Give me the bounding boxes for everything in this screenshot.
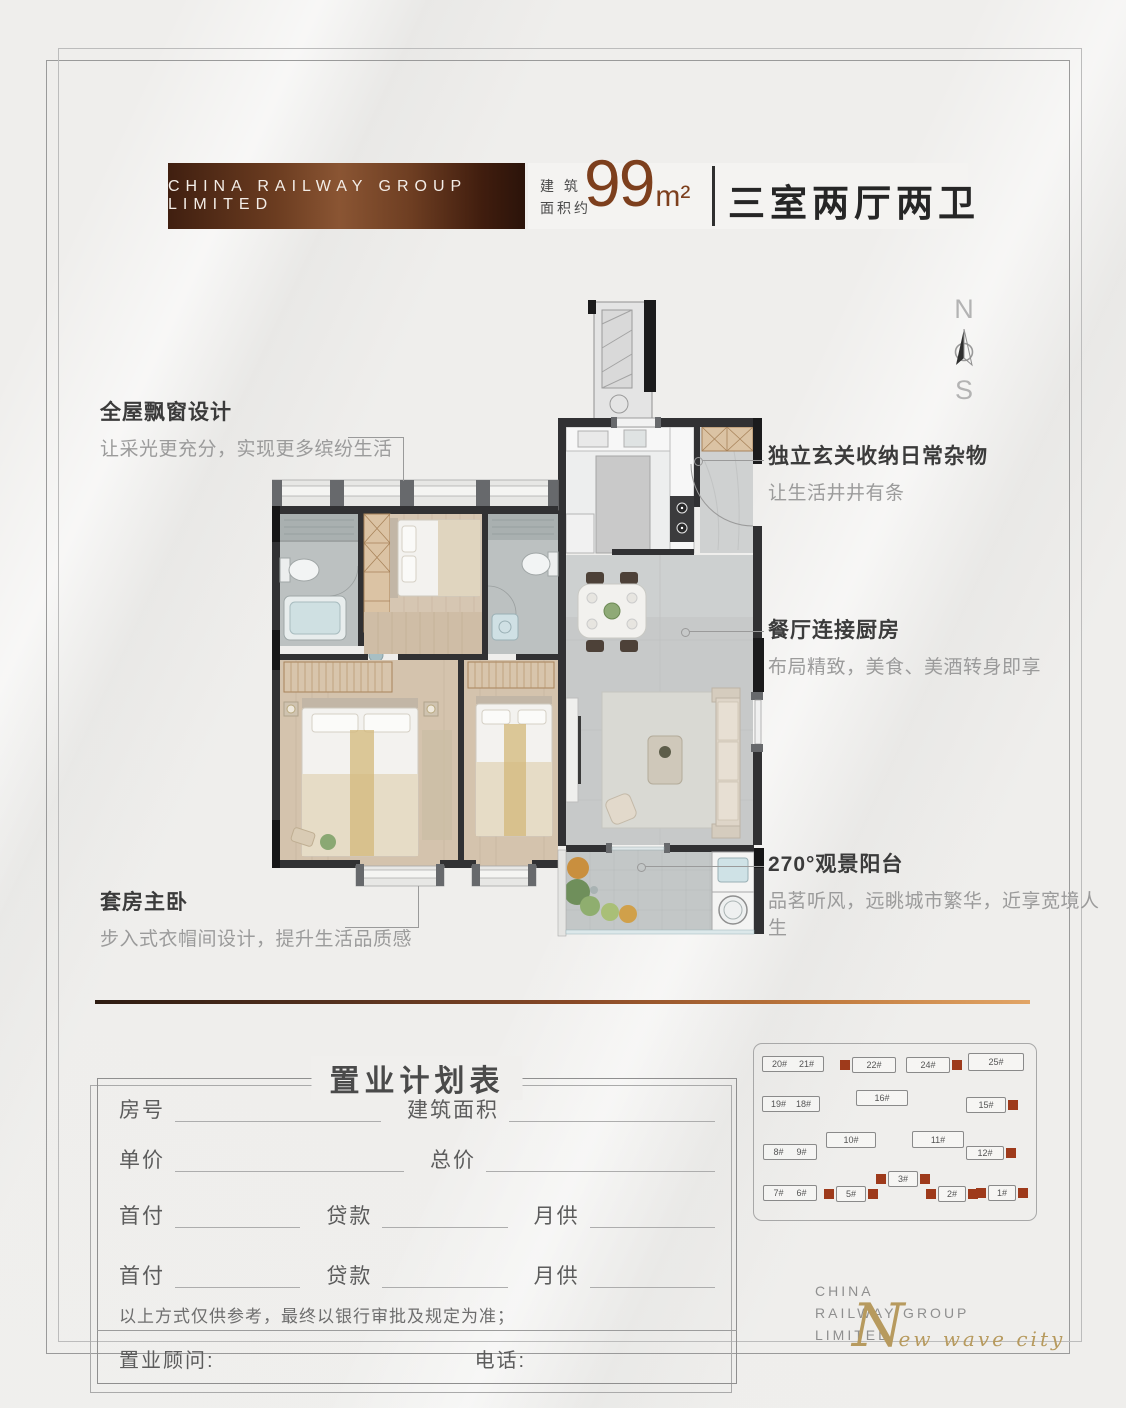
field-label-downpayment: 首付 <box>119 1200 165 1230</box>
building-label: 19# <box>771 1099 786 1109</box>
building-label: 10# <box>843 1135 858 1145</box>
building-outline: 5# <box>836 1186 866 1202</box>
connector-line <box>689 631 764 632</box>
field-blank <box>175 1098 381 1122</box>
site-building: 1# <box>976 1185 1028 1201</box>
building-label: 7# <box>773 1188 783 1198</box>
site-building: 10# <box>826 1132 876 1148</box>
site-building: 22# <box>840 1057 896 1073</box>
building-outline: 20#21# <box>762 1056 824 1072</box>
form-footer-row: 置业顾问: 电话: <box>119 1344 715 1373</box>
annotation-master-suite: 套房主卧 步入式衣帽间设计，提升生活品质感 <box>100 886 430 951</box>
building-outline: 16# <box>856 1090 908 1106</box>
brand-banner: CHINA RAILWAY GROUP LIMITED <box>168 163 525 229</box>
compass: N S <box>940 296 988 404</box>
building-outline: 22# <box>852 1057 896 1073</box>
connector-dot <box>637 863 646 872</box>
sold-marker <box>824 1189 834 1199</box>
building-label: 6# <box>796 1188 806 1198</box>
sold-marker <box>976 1188 986 1198</box>
building-label: 2# <box>947 1189 957 1199</box>
building-label: 15# <box>978 1100 993 1110</box>
consultant-label: 置业顾问: <box>119 1344 215 1373</box>
utility-shaft <box>588 300 656 422</box>
field-label-unit-price: 单价 <box>119 1144 165 1174</box>
building-label: 11# <box>931 1135 945 1145</box>
field-label-area: 建筑面积 <box>407 1094 499 1124</box>
site-building: 20#21# <box>762 1056 824 1072</box>
walls-left <box>272 506 280 866</box>
compass-north-label: N <box>940 296 988 323</box>
building-label: 24# <box>920 1060 935 1070</box>
site-map: 20#21#22#24#25#19#18#16#15#8#9#10#11#12#… <box>753 1043 1037 1221</box>
building-outline: 19#18# <box>762 1096 820 1112</box>
annotation-title: 270°观景阳台 <box>768 848 1108 878</box>
building-outline: 15# <box>966 1097 1006 1113</box>
layout-name: 三室两厅两卫 <box>728 173 980 227</box>
site-building: 16# <box>856 1090 908 1106</box>
building-label: 22# <box>866 1060 881 1070</box>
site-building: 3# <box>876 1171 930 1187</box>
script-rest: ew wave city <box>899 1327 1066 1351</box>
form-disclaimer: 以上方式仅供参考，最终以银行审批及规定为准； <box>119 1302 515 1327</box>
section-divider <box>95 1000 1030 1004</box>
building-label: 16# <box>874 1093 889 1103</box>
area-unit: m² <box>655 180 690 214</box>
connector-line <box>702 460 764 461</box>
building-outline: 7#6# <box>763 1185 817 1201</box>
sold-marker <box>926 1189 936 1199</box>
field-blank <box>509 1098 715 1122</box>
building-outline: 3# <box>888 1171 918 1187</box>
building-outline: 12# <box>966 1146 1004 1160</box>
phone-label: 电话: <box>475 1344 527 1373</box>
compass-needle-icon <box>951 329 977 371</box>
building-outline: 11# <box>912 1131 964 1148</box>
building-outline: 24# <box>906 1057 950 1073</box>
building-label: 21# <box>799 1059 814 1069</box>
field-label-downpayment: 首付 <box>119 1260 165 1290</box>
building-label: 9# <box>796 1147 806 1157</box>
building-outline: 2# <box>938 1186 966 1202</box>
field-label-loan: 贷款 <box>326 1200 372 1230</box>
entry-foyer <box>691 427 753 553</box>
sold-marker <box>1008 1100 1018 1110</box>
bathroom-1 <box>280 514 364 646</box>
field-blank <box>590 1204 715 1228</box>
compass-south-label: S <box>940 377 988 404</box>
field-blank <box>382 1204 507 1228</box>
sold-marker <box>952 1060 962 1070</box>
form-row: 首付 贷款 月供 <box>119 1260 715 1290</box>
connector-dot <box>694 457 703 466</box>
bay-window-top <box>272 480 558 514</box>
annotation-title: 套房主卧 <box>100 886 430 916</box>
building-outline: 25# <box>968 1053 1024 1071</box>
bedroom-3 <box>464 660 558 866</box>
field-label-monthly: 月供 <box>534 1200 580 1230</box>
building-label: 12# <box>977 1148 992 1158</box>
balcony <box>558 843 764 936</box>
building-label: 20# <box>772 1059 787 1069</box>
field-blank <box>175 1148 404 1172</box>
site-building: 25# <box>968 1053 1024 1071</box>
building-outline: 8#9# <box>763 1144 817 1160</box>
annotation-title: 独立玄关收纳日常杂物 <box>768 440 1078 470</box>
sold-marker <box>1006 1148 1016 1158</box>
script-initial: N <box>852 1291 905 1361</box>
field-blank <box>382 1264 507 1288</box>
site-building: 8#9# <box>763 1144 817 1160</box>
annotation-foyer: 独立玄关收纳日常杂物 让生活井井有条 <box>768 440 1078 505</box>
site-building: 12# <box>966 1146 1016 1160</box>
annotation-desc: 让生活井井有条 <box>768 478 1078 505</box>
sold-marker <box>868 1189 878 1199</box>
building-label: 18# <box>796 1099 811 1109</box>
site-building: 19#18# <box>762 1096 820 1112</box>
footer-script-logo: New wave city <box>852 1296 1065 1356</box>
sold-marker <box>920 1174 930 1184</box>
site-building: 11# <box>912 1131 964 1148</box>
building-label: 3# <box>898 1174 908 1184</box>
building-outline: 10# <box>826 1132 876 1148</box>
area-number: 99 <box>584 150 653 216</box>
field-label-monthly: 月供 <box>534 1260 580 1290</box>
annotation-bay-windows: 全屋飘窗设计 让采光更充分，实现更多缤纷生活 <box>100 396 430 461</box>
annotation-desc: 步入式衣帽间设计，提升生活品质感 <box>100 924 430 951</box>
field-label-loan: 贷款 <box>326 1260 372 1290</box>
field-label-total-price: 总价 <box>430 1144 476 1174</box>
field-blank <box>175 1264 300 1288</box>
spec-divider <box>712 166 715 226</box>
field-blank <box>486 1148 715 1172</box>
brand-banner-text: CHINA RAILWAY GROUP LIMITED <box>168 178 525 214</box>
annotation-desc: 布局精致，美食、美酒转身即享 <box>768 652 1098 679</box>
annotation-balcony: 270°观景阳台 品茗听风，远眺城市繁华，近享宽境人生 <box>768 848 1108 940</box>
purchase-plan-form: 置业计划表 房号 建筑面积 单价 总价 首付 贷款 月供 首付 贷款 月供 以上… <box>97 1078 737 1384</box>
sold-marker <box>1018 1188 1028 1198</box>
field-label-room: 房号 <box>119 1094 165 1124</box>
connector-dot <box>681 628 690 637</box>
annotation-dining-kitchen: 餐厅连接厨房 布局精致，美食、美酒转身即享 <box>768 614 1098 679</box>
site-building: 7#6# <box>763 1185 817 1201</box>
form-row: 单价 总价 <box>119 1144 715 1174</box>
annotation-desc: 让采光更充分，实现更多缤纷生活 <box>100 434 430 461</box>
sold-marker <box>876 1174 886 1184</box>
area-value: 99 m² <box>584 150 690 216</box>
kitchen <box>566 427 700 555</box>
bathroom-2 <box>488 514 558 654</box>
building-label: 25# <box>988 1057 1003 1067</box>
site-building: 5# <box>824 1186 878 1202</box>
site-building: 24# <box>906 1057 962 1073</box>
form-row: 房号 建筑面积 <box>119 1094 715 1124</box>
building-label: 1# <box>997 1188 1007 1198</box>
building-label: 8# <box>773 1147 783 1157</box>
annotation-title: 餐厅连接厨房 <box>768 614 1098 644</box>
field-blank <box>590 1264 715 1288</box>
field-blank <box>175 1204 300 1228</box>
annotation-desc: 品茗听风，远眺城市繁华，近享宽境人生 <box>768 886 1108 940</box>
form-separator <box>97 1330 737 1331</box>
sold-marker <box>840 1060 850 1070</box>
form-row: 首付 贷款 月供 <box>119 1200 715 1230</box>
site-building: 2# <box>926 1186 978 1202</box>
master-bedroom <box>280 660 458 866</box>
building-label: 5# <box>846 1189 856 1199</box>
hallway <box>364 612 482 654</box>
building-outline: 1# <box>988 1185 1016 1201</box>
annotation-title: 全屋飘窗设计 <box>100 396 430 426</box>
connector-line <box>645 866 764 867</box>
site-building: 15# <box>966 1097 1018 1113</box>
